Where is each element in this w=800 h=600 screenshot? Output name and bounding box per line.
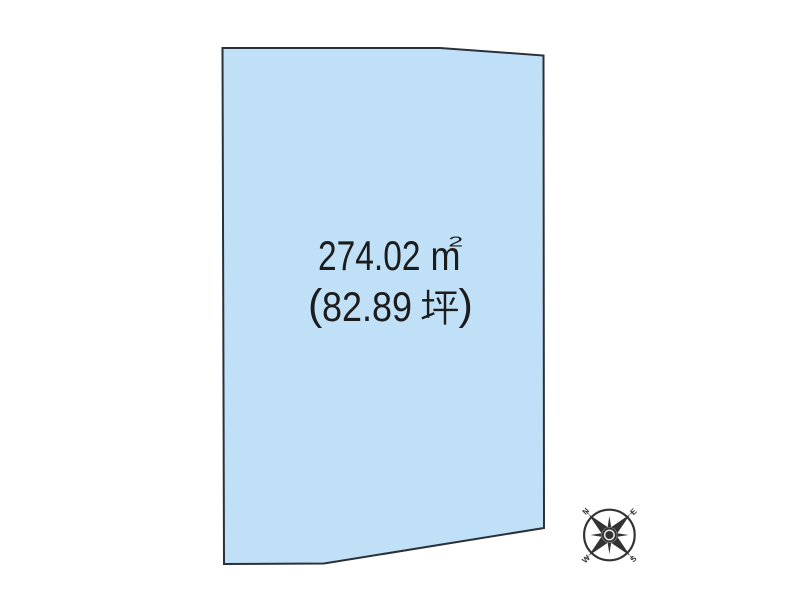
svg-text:): )	[459, 281, 473, 329]
svg-text:274.02: 274.02	[318, 232, 421, 279]
svg-text:82.89: 82.89	[322, 283, 412, 330]
svg-text:S: S	[628, 554, 639, 565]
svg-text:(: (	[308, 281, 323, 329]
svg-text:2: 2	[448, 234, 463, 250]
svg-text:E: E	[629, 506, 640, 517]
svg-text:W: W	[580, 553, 592, 565]
